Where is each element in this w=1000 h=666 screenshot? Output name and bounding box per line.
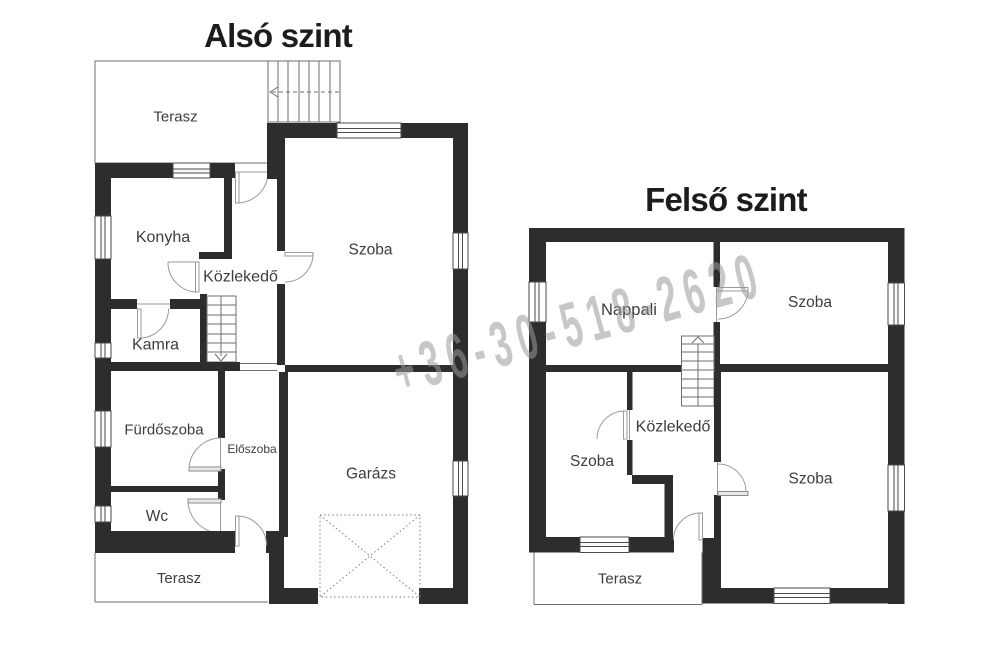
svg-text:Szoba: Szoba [789, 471, 833, 488]
svg-text:Szoba: Szoba [349, 242, 393, 259]
svg-text:Felső szint: Felső szint [645, 181, 808, 218]
svg-text:Terasz: Terasz [598, 571, 642, 588]
svg-text:Konyha: Konyha [136, 229, 190, 246]
svg-text:Wc: Wc [146, 508, 169, 525]
svg-text:Kamra: Kamra [132, 337, 179, 354]
svg-text:Terasz: Terasz [153, 109, 197, 126]
svg-text:Fürdőszoba: Fürdőszoba [124, 422, 204, 439]
svg-text:Közlekedő: Közlekedő [636, 419, 711, 436]
svg-text:Garázs: Garázs [346, 466, 396, 483]
svg-text:Terasz: Terasz [157, 570, 201, 587]
svg-text:Szoba: Szoba [570, 453, 614, 470]
svg-text:Közlekedő: Közlekedő [203, 269, 278, 286]
svg-text:Alsó szint: Alsó szint [204, 17, 353, 54]
svg-text:Előszoba: Előszoba [227, 442, 277, 456]
svg-text:Szoba: Szoba [788, 294, 832, 311]
